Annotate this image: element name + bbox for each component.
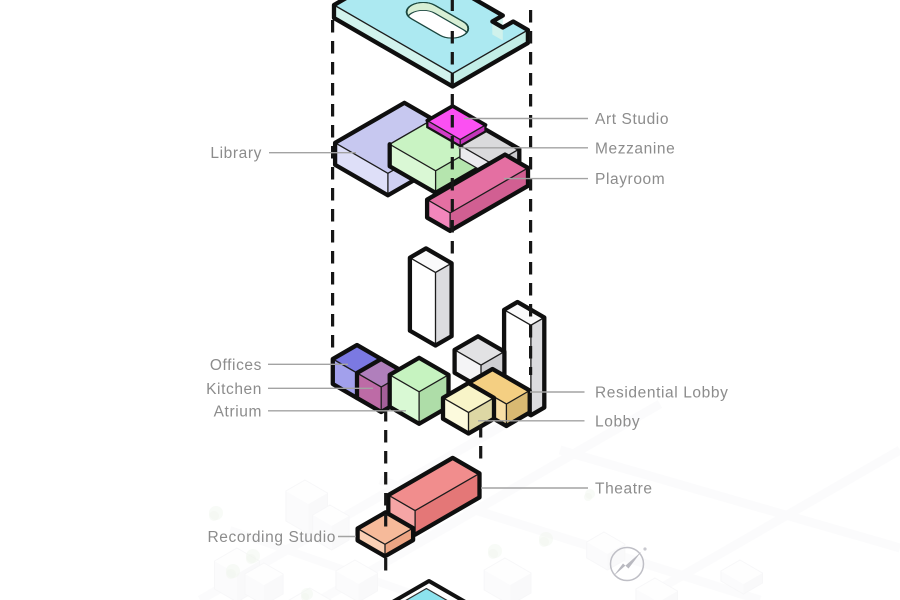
svg-text:Library: Library bbox=[210, 145, 262, 162]
svg-text:Kitchen: Kitchen bbox=[206, 381, 262, 398]
svg-text:Offices: Offices bbox=[210, 357, 262, 374]
svg-text:Lobby: Lobby bbox=[595, 413, 640, 430]
svg-text:Art Studio: Art Studio bbox=[595, 111, 669, 128]
svg-text:Playroom: Playroom bbox=[595, 171, 665, 188]
svg-text:Residential Lobby: Residential Lobby bbox=[595, 385, 728, 402]
svg-text:Mezzanine: Mezzanine bbox=[595, 140, 675, 157]
svg-text:Atrium: Atrium bbox=[214, 403, 262, 420]
svg-text:Theatre: Theatre bbox=[595, 481, 653, 498]
svg-text:Recording Studio: Recording Studio bbox=[207, 529, 336, 546]
